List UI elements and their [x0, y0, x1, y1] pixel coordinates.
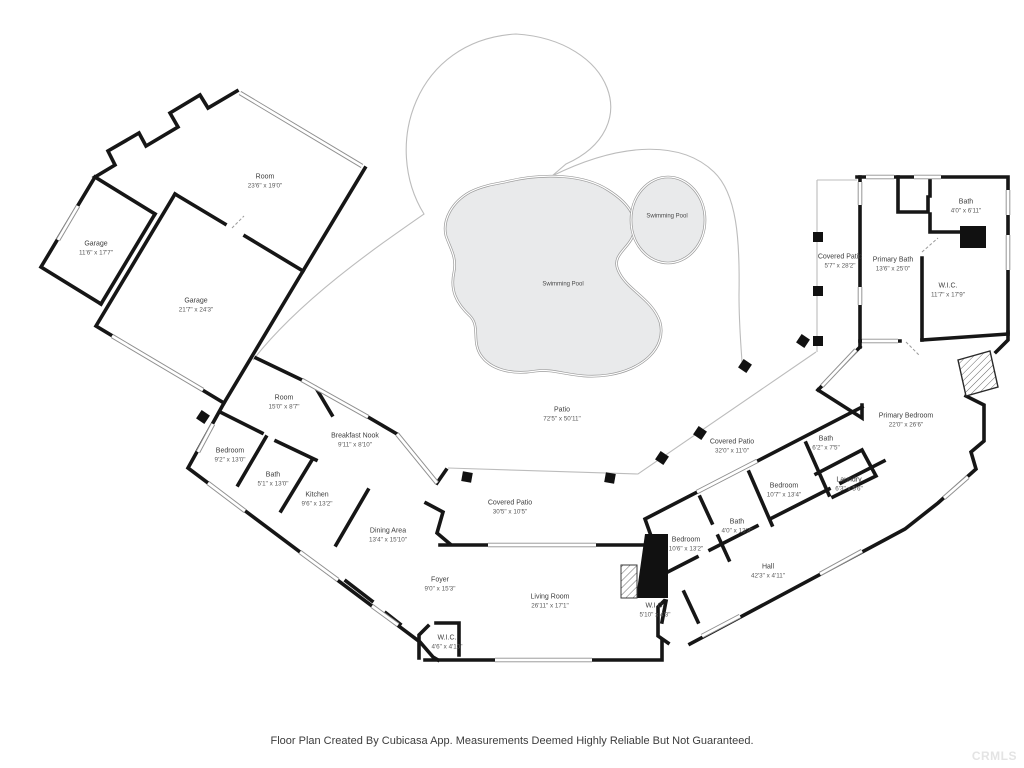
room-label: Covered Patio32'0" x 11'0": [710, 439, 754, 456]
room-label: Bedroom9'2" x 13'0": [214, 448, 245, 465]
room-label: Covered Patio5'7" x 28'2": [818, 254, 862, 271]
room-label: Covered Patio30'5" x 10'5": [488, 500, 532, 517]
room-label: W.I.C.4'6" x 4'10": [431, 635, 462, 652]
room-label: W.I.C.5'10" x 4'3": [639, 603, 670, 620]
room-label: Kitchen9'6" x 13'2": [301, 492, 332, 509]
room-label: Garage21'7" x 24'3": [179, 298, 214, 315]
room-label: Laundry6'3" x 5'6": [835, 477, 863, 494]
crmls-watermark: CRMLS: [972, 749, 1017, 763]
room-label: Swimming Pool: [646, 213, 687, 221]
room-labels-layer: Room23'6" x 19'0"Garage11'6" x 17'7"Gara…: [0, 0, 1024, 768]
room-label: Breakfast Nook9'11" x 8'10": [331, 433, 379, 450]
room-label: Primary Bath13'6" x 25'0": [873, 257, 913, 274]
room-label: W.I.C.11'7" x 17'9": [931, 283, 965, 300]
room-label: Dining Area13'4" x 15'10": [369, 528, 407, 545]
room-label: Hall42'3" x 4'11": [751, 564, 785, 581]
room-label: Room23'6" x 19'0": [248, 174, 283, 191]
room-label: Primary Bedroom22'0" x 26'6": [879, 413, 933, 430]
room-label: Living Room26'11" x 17'1": [531, 594, 570, 611]
room-label: Bedroom10'6" x 13'2": [669, 537, 704, 554]
room-label: Bedroom10'7" x 13'4": [767, 483, 802, 500]
room-label: Foyer9'0" x 15'3": [424, 577, 455, 594]
room-label: Bath4'0" x 13'3": [721, 519, 752, 536]
room-label: Garage11'6" x 17'7": [79, 241, 113, 258]
room-label: Bath6'2" x 7'5": [812, 436, 840, 453]
footer-disclaimer: Floor Plan Created By Cubicasa App. Meas…: [0, 735, 1024, 747]
floor-plan-page: Room23'6" x 19'0"Garage11'6" x 17'7"Gara…: [0, 0, 1024, 768]
room-label: Bath4'0" x 6'11": [951, 199, 982, 216]
room-label: Patio72'5" x 50'11": [543, 407, 581, 424]
room-label: Room15'0" x 8'7": [268, 395, 299, 412]
room-label: Swimming Pool: [542, 281, 583, 289]
room-label: Bath5'1" x 13'0": [257, 472, 288, 489]
